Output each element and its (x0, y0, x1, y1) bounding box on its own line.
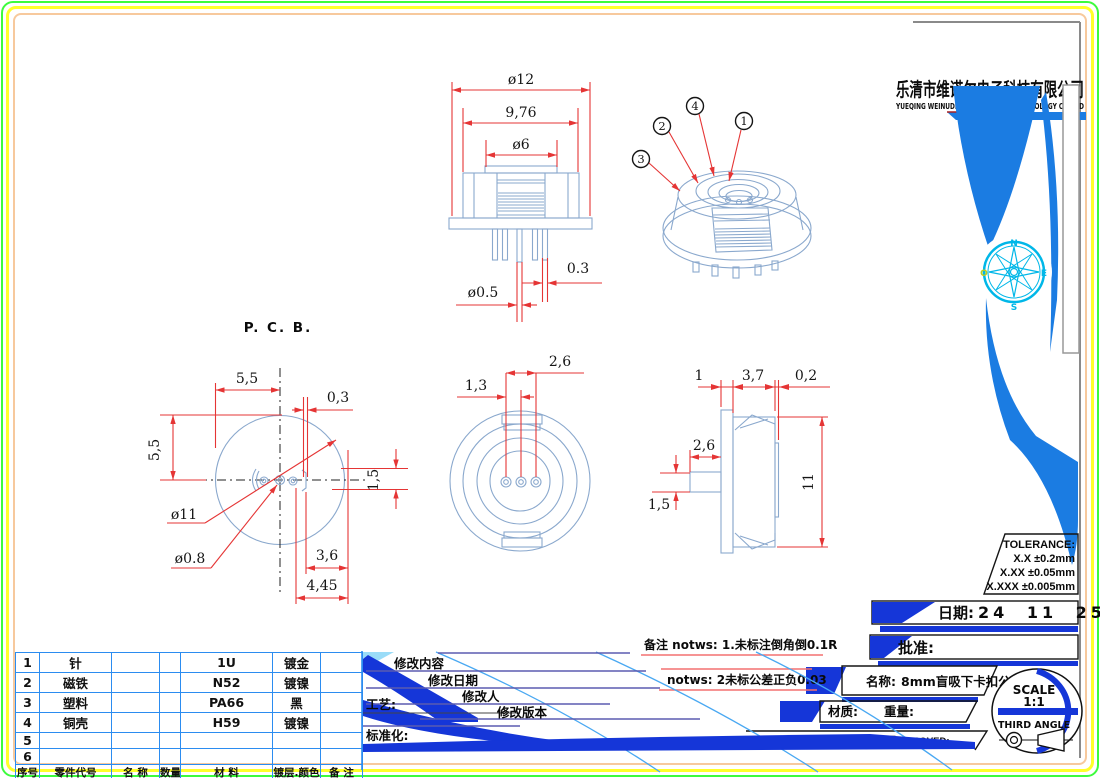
part-cell: 针 (40, 653, 112, 673)
svg-text:1: 1 (740, 114, 747, 128)
table-row: 5 (16, 733, 363, 749)
part-cell: 1 (16, 653, 40, 673)
dim-1-5-pcb: 1,5 (366, 469, 382, 491)
part-cell (321, 749, 363, 765)
table-row: 4 铜壳 H59 镀镍 (16, 713, 363, 733)
dim-1-5-side: 1,5 (648, 497, 670, 513)
revision-content-label: 修改内容 (393, 656, 445, 671)
part-cell (112, 713, 160, 733)
part-cell: 镀金 (273, 653, 321, 673)
table-row: 2 磁铁 N52 镀镍 (16, 673, 363, 693)
part-cell (112, 749, 160, 765)
pcb-view: P. C. B. 5,5 5,5 0,3 (147, 320, 408, 604)
part-cell (321, 693, 363, 713)
header-cell: 镀层.颜色 (273, 765, 321, 778)
dim-1-3: 1,3 (465, 378, 487, 394)
dim-1: 1 (695, 368, 704, 384)
isometric-view: 3 2 4 1 (633, 98, 812, 279)
bottom-view: 2,6 1,3 (450, 354, 590, 551)
part-cell: H59 (181, 713, 273, 733)
part-cell: 磁铁 (40, 673, 112, 693)
part-cell (321, 653, 363, 673)
header-cell: 名 称 (112, 765, 160, 778)
part-cell (321, 673, 363, 693)
part-cell: 1U (181, 653, 273, 673)
dim-dia11: ø11 (171, 507, 197, 523)
part-cell (321, 733, 363, 749)
dim-0-2: 0,2 (795, 368, 817, 384)
drawing-sheet: ø12 9,76 ø6 0.3 ø0.5 (0, 0, 1100, 778)
part-cell (112, 693, 160, 713)
part-cell (112, 733, 160, 749)
tolerance-box: TOLERANCE: X.X ±0.2mm X.XX ±0.05mm X.XXX… (984, 534, 1078, 594)
dim-2-6-bottom: 2,6 (549, 354, 571, 370)
part-cell (321, 713, 363, 733)
compass-rose: N E S O (976, 234, 1052, 313)
part-cell: 黑 (273, 693, 321, 713)
dim-dia12: ø12 (508, 72, 534, 88)
part-cell: 铜壳 (40, 713, 112, 733)
svg-text:2: 2 (658, 119, 665, 133)
balloon-3: 3 (633, 151, 681, 192)
part-cell (160, 653, 181, 673)
header-cell: 数量 (160, 765, 181, 778)
part-cell (160, 713, 181, 733)
header-cell: 序号 (16, 765, 40, 778)
tolerance-line2: X.XX ±0.05mm (1000, 567, 1075, 579)
dim-9-76: 9,76 (505, 105, 536, 121)
part-cell (181, 733, 273, 749)
tolerance-title: TOLERANCE: (1003, 539, 1075, 551)
part-cell (40, 749, 112, 765)
material-label: 材质: (827, 704, 858, 719)
dim-5-5-v: 5,5 (147, 439, 163, 461)
front-hatch (498, 193, 544, 211)
part-cell (273, 749, 321, 765)
part-cell: 镀镍 (273, 713, 321, 733)
part-cell (160, 693, 181, 713)
compass-w: O (980, 269, 988, 279)
revision-date-label: 修改日期 (427, 673, 478, 688)
third-angle-label: THIRD ANGLE (998, 720, 1070, 731)
header-cell: 备 注 (321, 765, 363, 778)
svg-text:4: 4 (691, 99, 698, 113)
header-cell: 零件代号 (40, 765, 112, 778)
front-view: ø12 9,76 ø6 0.3 ø0.5 (449, 72, 602, 322)
part-cell: 2 (16, 673, 40, 693)
dim-0-3-pcb: 0,3 (327, 390, 349, 406)
part-cell: PA66 (181, 693, 273, 713)
right-decor-band: N E S O (953, 85, 1079, 565)
table-row: 1 针 1U 镀金 (16, 653, 363, 673)
revision-process-label: 工艺: (366, 697, 396, 712)
parts-table: 1 针 1U 镀金 2 磁铁 N52 镀镍 3 塑料 (15, 652, 363, 778)
revision-person-label: 修改人 (461, 689, 500, 704)
weight-label: 重量: (884, 704, 914, 719)
part-cell: 3 (16, 693, 40, 713)
name-label: 名称: (866, 674, 896, 689)
tolerance-line1: X.X ±0.2mm (1013, 553, 1075, 565)
part-cell: 6 (16, 749, 40, 765)
bottom-band-swoosh (363, 734, 975, 752)
compass-s: S (1011, 303, 1017, 313)
dim-dia6: ø6 (512, 137, 529, 153)
balloon-4: 4 (687, 98, 715, 177)
part-cell (273, 733, 321, 749)
note-line2: notws: 2未标公差正负0.03 (667, 672, 827, 687)
part-cell (112, 673, 160, 693)
part-cell: 镀镍 (273, 673, 321, 693)
part-cell (160, 733, 181, 749)
part-cell (160, 749, 181, 765)
compass-n: N (1010, 239, 1018, 249)
part-cell: N52 (181, 673, 273, 693)
approve-label: 批准: (898, 639, 934, 657)
part-cell: 塑料 (40, 693, 112, 713)
dim-dia0-5: ø0.5 (468, 285, 499, 301)
svg-text:3: 3 (637, 152, 644, 166)
part-cell: 5 (16, 733, 40, 749)
date-label: 日期: (938, 604, 974, 622)
part-cell (160, 673, 181, 693)
part-cell: 4 (16, 713, 40, 733)
dim-0-3: 0.3 (567, 261, 589, 277)
dim-3-7: 3,7 (742, 368, 764, 384)
side-view: 1 3,7 0,2 2,6 1,5 11 (648, 368, 830, 553)
dim-4-45: 4,45 (306, 578, 337, 594)
name-value: 8mm盲吸下卡扣公 (901, 674, 1011, 689)
revision-standard-label: 标准化: (365, 728, 409, 743)
compass-e: E (1041, 269, 1047, 279)
scale-value: 1:1 (1023, 695, 1045, 709)
date-value: 24 11 25 (978, 603, 1100, 622)
dim-2-6-side: 2,6 (693, 438, 715, 454)
table-header-row: 序号 零件代号 名 称 数量 材 料 镀层.颜色 备 注 (16, 765, 363, 778)
dim-5-5-h: 5,5 (236, 371, 258, 387)
note-line1: 备注 notws: 1.未标注倒角倒0.1R (643, 637, 837, 652)
iso-hatch (715, 228, 772, 247)
table-row: 6 (16, 749, 363, 765)
dim-dia0-8: ø0.8 (175, 551, 206, 567)
revision-version-label: 修改版本 (496, 705, 548, 720)
part-cell (40, 733, 112, 749)
part-cell (112, 653, 160, 673)
header-cell: 材 料 (181, 765, 273, 778)
tolerance-line3: X.XXX ±0.005mm (986, 581, 1075, 593)
scale-projection-stamp: SCALE 1:1 THIRD ANGLE (992, 669, 1082, 753)
table-row: 3 塑料 PA66 黑 (16, 693, 363, 713)
notes-block: 备注 notws: 1.未标注倒角倒0.1R notws: 2未标公差正负0.0… (641, 637, 837, 690)
band-white-column (1063, 85, 1079, 353)
dim-3-6: 3,6 (316, 548, 338, 564)
dim-11: 11 (801, 473, 817, 491)
pcb-title: P. C. B. (244, 320, 312, 336)
part-cell (181, 749, 273, 765)
